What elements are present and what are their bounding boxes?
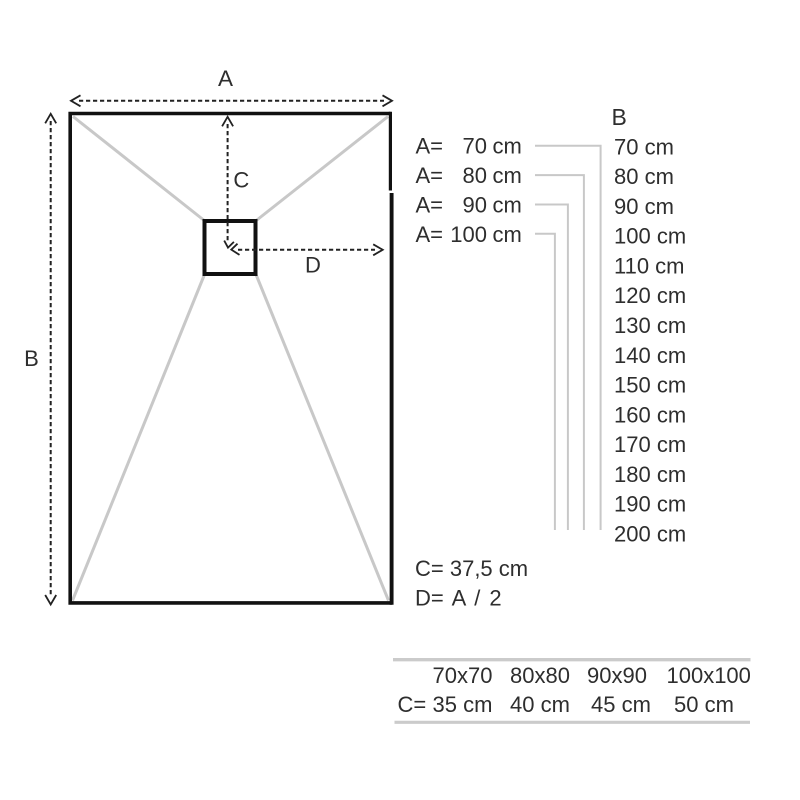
svg-text:80: 80 [463,163,487,188]
svg-text:170 cm: 170 cm [614,432,686,457]
svg-text:70: 70 [463,134,487,159]
svg-text:100 cm: 100 cm [614,224,686,249]
svg-text:A=: A= [416,163,444,188]
svg-text:90x90: 90x90 [587,663,647,688]
svg-text:40 cm: 40 cm [510,692,570,717]
svg-text:cm: cm [493,163,522,188]
svg-text:A=: A= [416,134,444,159]
svg-text:C: C [233,168,249,193]
svg-text:C=: C= [398,692,427,717]
svg-text:90 cm: 90 cm [614,194,674,219]
svg-text:cm: cm [493,134,522,159]
svg-text:100x100: 100x100 [666,663,750,688]
svg-text:80x80: 80x80 [510,663,570,688]
svg-text:35 cm: 35 cm [433,692,493,717]
svg-text:110 cm: 110 cm [614,254,685,279]
svg-text:200 cm: 200 cm [614,521,686,546]
svg-text:70 cm: 70 cm [614,134,674,159]
svg-text:180 cm: 180 cm [614,462,686,487]
svg-text:120 cm: 120 cm [614,283,686,308]
svg-text:70x70: 70x70 [433,663,493,688]
svg-text:80 cm: 80 cm [614,164,674,189]
svg-text:B: B [612,104,627,130]
svg-text:190 cm: 190 cm [614,492,686,517]
svg-text:45 cm: 45 cm [591,692,651,717]
svg-text:160 cm: 160 cm [614,402,686,427]
svg-text:50 cm: 50 cm [674,692,734,717]
svg-text:100: 100 [450,222,487,247]
svg-text:D: D [305,253,321,278]
svg-text:C= 37,5 cm: C= 37,5 cm [415,556,528,581]
svg-text:cm: cm [493,222,522,247]
svg-text:cm: cm [493,193,522,218]
svg-text:140 cm: 140 cm [614,343,686,368]
svg-text:D= A / 2: D= A / 2 [415,586,502,611]
svg-text:130 cm: 130 cm [614,313,686,338]
svg-text:150 cm: 150 cm [614,373,686,398]
svg-text:A=: A= [416,193,444,218]
svg-text:B: B [24,346,39,371]
svg-text:A=: A= [416,222,444,247]
svg-text:90: 90 [463,193,487,218]
svg-text:A: A [218,66,233,91]
